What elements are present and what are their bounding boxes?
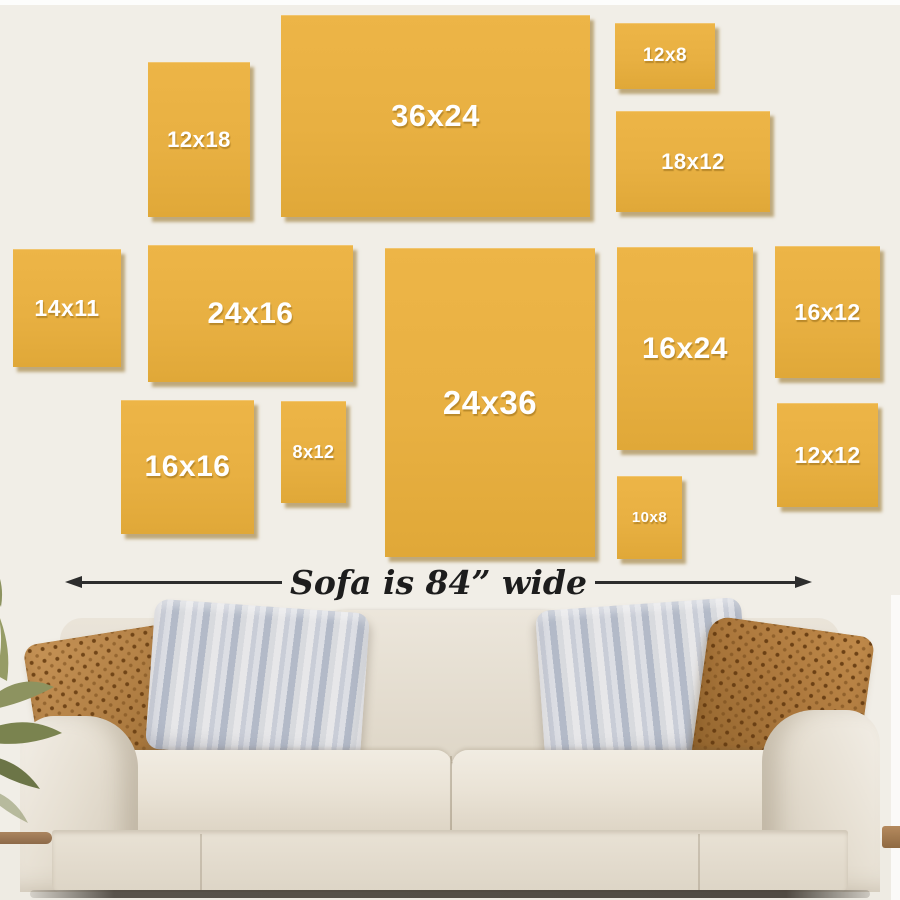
frame-label: 18x12 [661, 149, 725, 175]
side-table-sliver [882, 826, 900, 848]
frame-16x16: 16x16 [121, 400, 254, 534]
frame-label: 12x12 [794, 442, 860, 469]
frame-14x11: 14x11 [13, 249, 121, 367]
pillow-striped-left [145, 599, 370, 764]
frame-12x12: 12x12 [777, 403, 878, 507]
frame-label: 14x11 [34, 295, 99, 322]
frame-label: 10x8 [632, 509, 667, 526]
plant-pot-rim [0, 832, 52, 844]
frame-label: 12x18 [167, 127, 231, 153]
frame-12x8: 12x8 [615, 23, 715, 89]
sofa-base-skirt [52, 830, 848, 892]
frame-36x24: 36x24 [281, 15, 590, 217]
dimension-line-right [595, 581, 795, 584]
frame-24x36: 24x36 [385, 248, 595, 557]
frame-12x18: 12x18 [148, 62, 250, 217]
sofa-width-dimension: Sofa is 84” wide [65, 560, 812, 604]
frame-label: 16x24 [642, 332, 728, 366]
frame-label: 36x24 [391, 98, 480, 134]
frame-label: 24x36 [443, 384, 537, 422]
frame-label: 16x16 [145, 450, 231, 484]
dimension-line-left [82, 581, 282, 584]
frame-label: 24x16 [208, 297, 294, 331]
sofa-seat-seam [450, 756, 452, 834]
frame-16x12: 16x12 [775, 246, 880, 378]
arrow-right-icon [795, 576, 812, 588]
frame-label: 12x8 [643, 45, 687, 67]
frame-24x16: 24x16 [148, 245, 353, 382]
sofa-base-seam-right [698, 834, 700, 890]
frame-10x8: 10x8 [617, 476, 682, 559]
sofa-seat-cushion-left [96, 750, 452, 838]
frame-label: 16x12 [794, 299, 860, 326]
sofa-floor-shadow [30, 890, 870, 898]
frame-18x12: 18x12 [616, 111, 770, 212]
sofa-base-seam-left [200, 834, 202, 890]
top-white-border [0, 0, 900, 5]
sofa-seat-cushion-right [452, 750, 808, 838]
frame-label: 8x12 [292, 442, 334, 463]
frame-16x24: 16x24 [617, 247, 753, 450]
plant-leaves [0, 555, 74, 855]
frame-8x12: 8x12 [281, 401, 346, 503]
sofa-width-text: Sofa is 84” wide [282, 566, 595, 599]
photo-right-edge [891, 595, 900, 900]
canvas-size-comparison-infographic: 12x18 36x24 12x8 18x12 14x11 24x16 24x36… [0, 0, 900, 900]
